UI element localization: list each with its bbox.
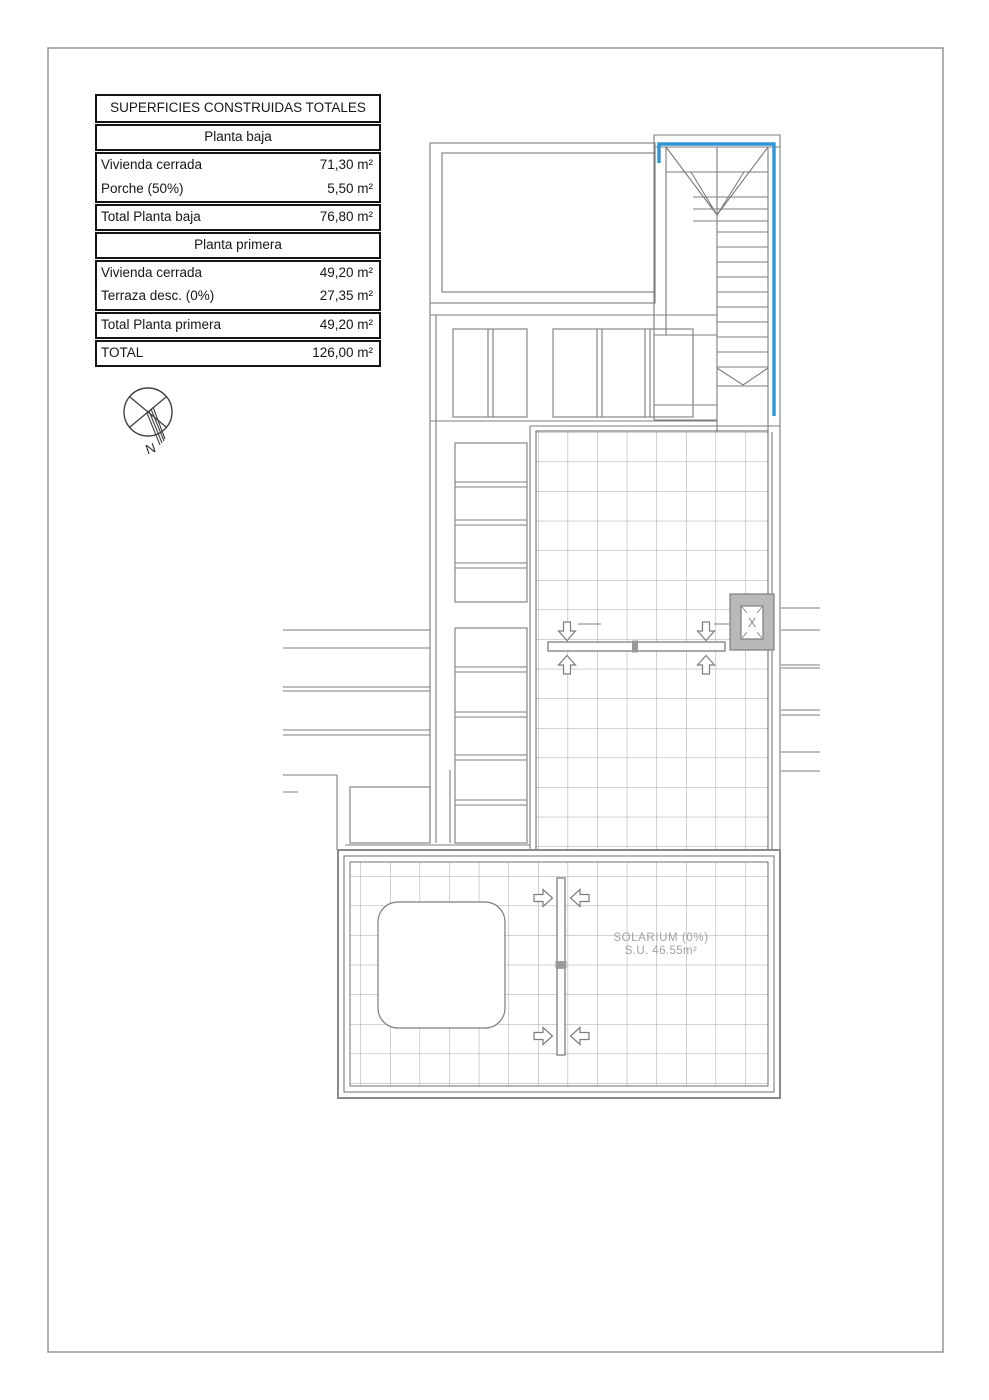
table-row: TOTAL 126,00 m² (97, 342, 379, 365)
stair-chevron (717, 368, 768, 385)
row-value: 126,00 m² (312, 345, 373, 361)
table-row: Vivienda cerrada 49,20 m² (97, 262, 379, 285)
row-label: Vivienda cerrada (101, 265, 202, 281)
table-title: SUPERFICIES CONSTRUIDAS TOTALES (95, 94, 381, 123)
panel-group-right (553, 329, 693, 417)
north-label: N (144, 440, 158, 457)
staircase (654, 135, 780, 432)
table-row: Terraza desc. (0%) 27,35 m² (97, 285, 379, 308)
row-label: Porche (50%) (101, 181, 184, 197)
stair-treads (717, 232, 768, 367)
row-label: TOTAL (101, 345, 143, 361)
table-row: Total Planta primera 49,20 m² (97, 314, 379, 337)
row-value: 76,80 m² (320, 209, 373, 225)
section-header-planta-primera: Planta primera (95, 232, 381, 259)
jacuzzi-outline (378, 902, 505, 1028)
panel-group-left (453, 329, 527, 417)
compass-needle (147, 407, 165, 445)
table-row: Porche (50%) 5,50 m² (97, 178, 379, 201)
table-row: Total Planta baja 76,80 m² (97, 206, 379, 229)
glass-balustrade-vertical (556, 878, 567, 1055)
table-row: Vivienda cerrada 71,30 m² (97, 154, 379, 177)
section-rows-planta-baja: Vivienda cerrada 71,30 m² Porche (50%) 5… (95, 152, 381, 202)
areas-table: SUPERFICIES CONSTRUIDAS TOTALES Planta b… (95, 94, 381, 367)
solarium-label-line1: SOLARIUM (0%) (613, 932, 708, 944)
chimney: X (730, 594, 774, 650)
row-value: 71,30 m² (320, 157, 373, 173)
total-row-planta-primera: Total Planta primera 49,20 m² (95, 312, 381, 339)
section-header-planta-baja: Planta baja (95, 124, 381, 151)
row-label: Terraza desc. (0%) (101, 288, 214, 304)
pergola-louvres (455, 443, 527, 843)
row-label: Total Planta primera (101, 317, 221, 333)
row-value: 27,35 m² (320, 288, 373, 304)
solarium: SOLARIUM (0%) S.U. 46.55m² (338, 850, 780, 1098)
roof-terrace: X (530, 420, 780, 850)
section-rows-planta-primera: Vivienda cerrada 49,20 m² Terraza desc. … (95, 260, 381, 310)
neighbor-lines-right (781, 608, 820, 771)
total-row-planta-baja: Total Planta baja 76,80 m² (95, 204, 381, 231)
row-label: Vivienda cerrada (101, 157, 202, 173)
row-value: 5,50 m² (327, 181, 373, 197)
chimney-marker: X (748, 616, 757, 630)
grand-total-row: TOTAL 126,00 m² (95, 340, 381, 367)
row-value: 49,20 m² (320, 265, 373, 281)
drawing-sheet: X SOLARIUM (0%) S.U. 46.55m² (0, 0, 989, 1400)
row-label: Total Planta baja (101, 209, 201, 225)
north-compass-icon: N (124, 388, 172, 457)
row-value: 49,20 m² (320, 317, 373, 333)
neighbor-lines-left (283, 630, 430, 850)
lower-room-outline (350, 787, 430, 843)
solarium-label-line2: S.U. 46.55m² (625, 945, 698, 957)
